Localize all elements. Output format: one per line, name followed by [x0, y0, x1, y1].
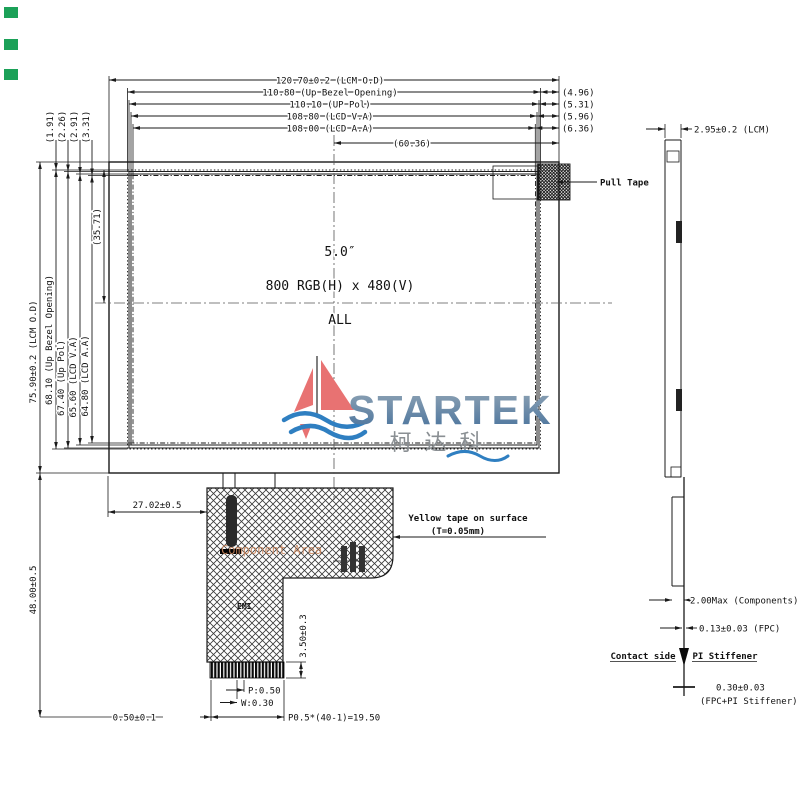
fpc-offset-dimension: 27.02±0.5 — [108, 476, 207, 517]
pull-tape-outline — [493, 166, 538, 199]
side-foot — [671, 467, 681, 477]
dim-components-max: 2.00Max (Components) — [690, 597, 798, 607]
green-marker — [4, 39, 18, 50]
panel-info: 5.0″ 800 RGB(H) x 480(V) ALL — [266, 245, 415, 328]
dim-stiffener-total-2: (FPC+PI Stiffener) — [700, 697, 798, 707]
dim-aa-height: 64.80 (LCD A.A) — [81, 335, 91, 416]
dim-finger-width: W:0.30 — [241, 699, 274, 709]
bottom-dimensions: 0.50±0.1 P0.5*(40-1)=19.50 — [40, 680, 380, 724]
contact-fingers — [210, 662, 284, 678]
dim-lcm-width: 120.70±0.2 (LCM O.D) — [276, 77, 384, 87]
emi-label: EMI — [237, 602, 252, 611]
dim-half-width: (60.36) — [393, 140, 431, 150]
side-view: 2.95±0.2 (LCM) 2.00Max (Components) 0.13… — [610, 124, 798, 707]
dim-contact-height: 3.50±0.3 — [299, 614, 309, 657]
panel-mode-label: ALL — [328, 313, 352, 328]
panel-resolution-label: 800 RGB(H) x 480(V) — [266, 279, 415, 294]
green-markers — [4, 7, 18, 80]
dim-fpc-offset: 27.02±0.5 — [133, 501, 182, 511]
side-thickness-dimension: 2.95±0.2 (LCM) — [646, 124, 770, 138]
dim-pol-width: 110.10 (UP Pol) — [289, 101, 370, 111]
dim-aa-width: 108.00 (LCD A.A) — [287, 125, 374, 135]
dim-pitch: P:0.50 — [248, 687, 281, 697]
logo-wordmark: STARTEK — [348, 387, 553, 433]
green-marker — [4, 69, 18, 80]
dim-half-height: (35.71) — [93, 208, 103, 246]
green-marker — [4, 7, 18, 18]
logo-chinese: 柯达科 — [389, 431, 494, 456]
dim-bezel-height: 68.10 (Up Bezel Opening) — [45, 275, 55, 405]
gap-right-pol: (5.31) — [562, 101, 595, 111]
dim-fpc-thickness: 0.13±0.03 (FPC) — [699, 625, 780, 635]
yellow-tape-label-2: (T=0.05mm) — [431, 527, 485, 537]
dim-fpc-length: 48.00±0.5 — [29, 566, 39, 615]
yellow-tape-note: Yellow tape on surface (T=0.05mm) — [393, 514, 546, 537]
technical-drawing: 120.70±0.2 (LCM O.D) 110.80 (Up Bezel Op… — [0, 0, 800, 800]
component-area-label: Component Area — [221, 543, 322, 557]
gap-right-aa: (6.36) — [562, 125, 595, 135]
dim-lcm-height: 75.90±0.2 (LCM O.D) — [29, 301, 39, 404]
panel-size-label: 5.0″ — [324, 245, 355, 260]
side-profile — [665, 140, 684, 696]
side-components-dimension: 2.00Max (Components) — [649, 597, 798, 607]
dim-lcm-thickness: 2.95±0.2 (LCM) — [694, 126, 770, 136]
top-gap-dimensions: (1.91) (2.26) (2.91) (3.31) — [46, 111, 92, 176]
dim-stiffener-total: 0.30±0.03 — [716, 684, 765, 694]
gap-top-bezel: (1.91) — [46, 111, 56, 144]
side-fpc-dimension: 0.13±0.03 (FPC) — [660, 625, 780, 635]
gap-right-va: (5.96) — [562, 113, 595, 123]
pull-tape: Pull Tape — [493, 164, 649, 200]
gap-top-aa: (3.31) — [82, 111, 92, 144]
dim-va-width: 108.80 (LCD V.A) — [287, 113, 374, 123]
pull-tape-label: Pull Tape — [600, 179, 649, 189]
dim-pol-height: 67.40 (Up Pol) — [57, 340, 67, 416]
pitch-dimensions: P:0.50 W:0.30 — [220, 680, 281, 709]
gap-top-va: (2.91) — [70, 111, 80, 144]
pi-stiffener-label: PI Stiffener — [692, 651, 758, 662]
down-arrow-icon — [679, 648, 689, 666]
dim-edge-margin: 0.50±0.1 — [113, 714, 156, 724]
side-top-bracket — [667, 151, 679, 162]
dim-bezel-width: 110.80 (Up Bezel Opening) — [262, 89, 397, 99]
contact-height-dimension: 3.50±0.3 — [286, 614, 309, 678]
fpc-component — [226, 495, 237, 547]
yellow-tape-label-1: Yellow tape on surface — [408, 514, 528, 524]
right-gap-dimensions: (4.96) (5.31) (5.96) (6.36) — [535, 89, 594, 135]
side-mark-2 — [676, 389, 682, 411]
dim-va-height: 65.60 (LCD V.A) — [69, 336, 79, 417]
left-dimensions: 75.90±0.2 (LCM O.D) 68.10 (Up Bezel Open… — [29, 162, 104, 717]
gap-top-pol: (2.26) — [58, 111, 68, 144]
dim-pitch-total: P0.5*(40-1)=19.50 — [288, 714, 380, 724]
side-mark-1 — [676, 221, 682, 243]
drawing-page: 120.70±0.2 (LCM O.D) 110.80 (Up Bezel Op… — [0, 0, 800, 800]
contact-side-note: Contact side PI Stiffener 0.30±0.03 (FPC… — [610, 648, 798, 707]
gap-right-bezel: (4.96) — [562, 89, 595, 99]
contact-side-label: Contact side — [610, 651, 676, 662]
